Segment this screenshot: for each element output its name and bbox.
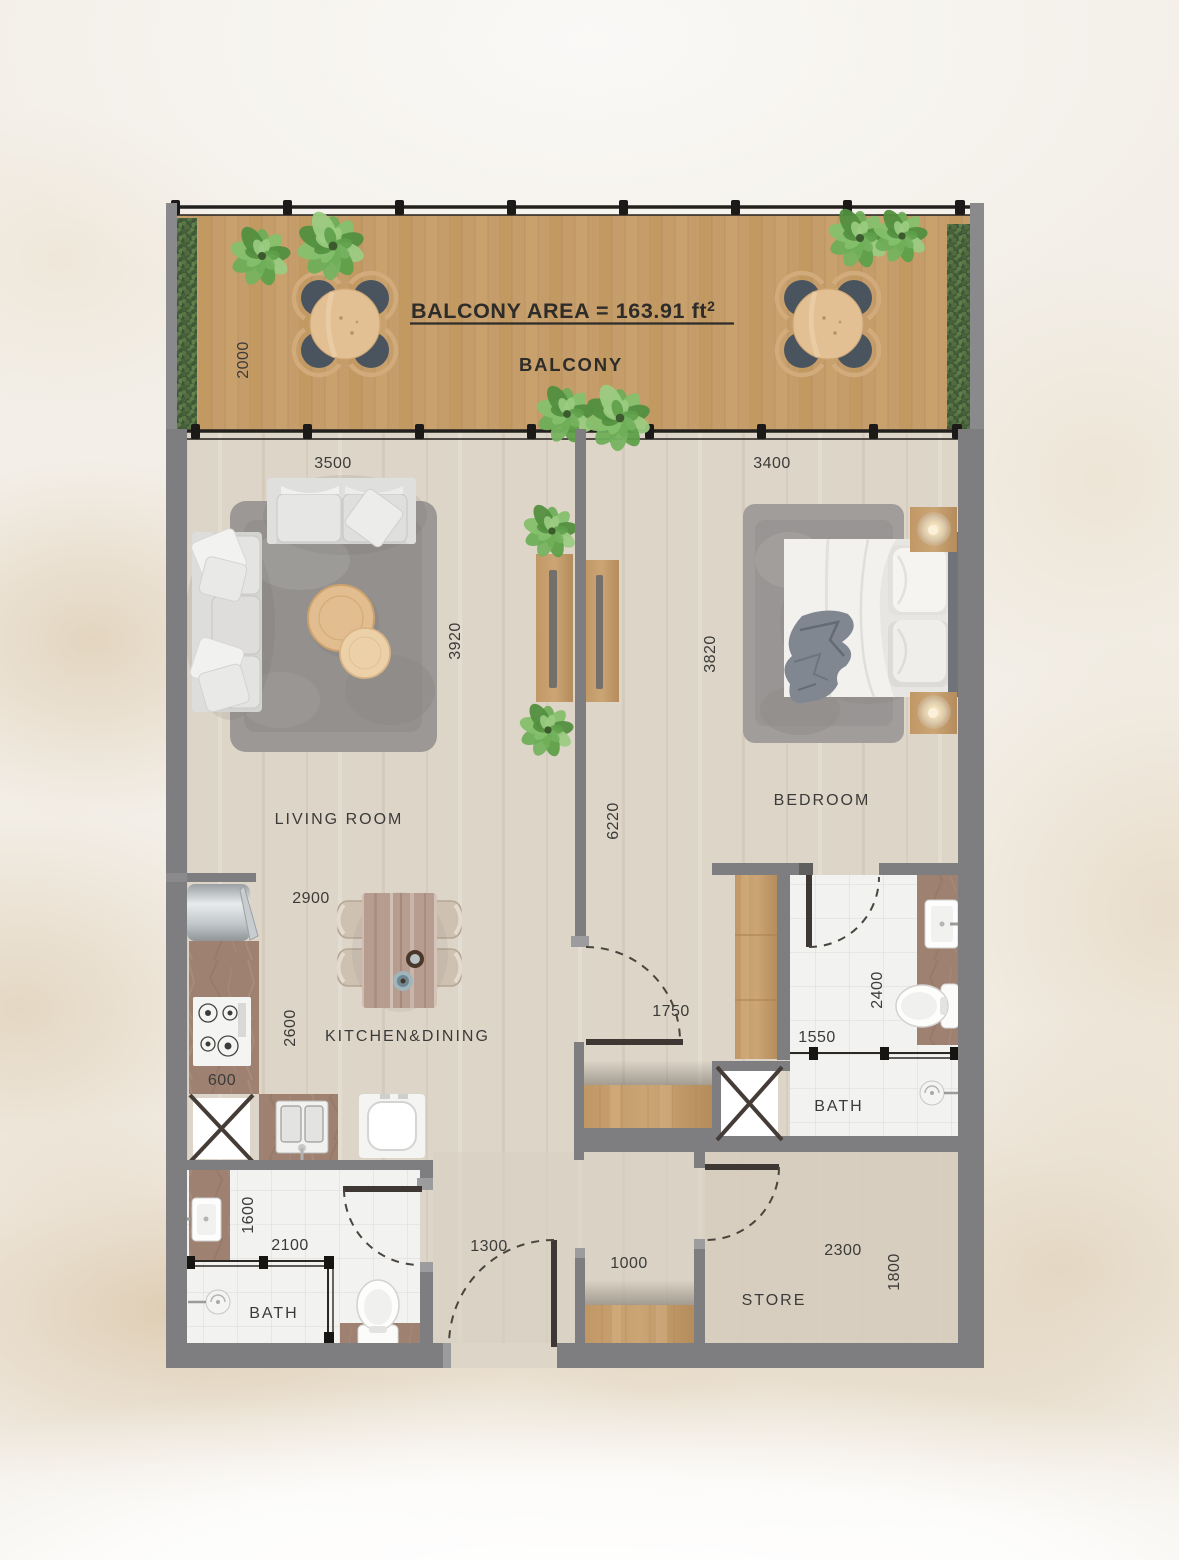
svg-text:1300: 1300	[470, 1238, 508, 1255]
svg-text:600: 600	[208, 1072, 236, 1089]
svg-text:BATH: BATH	[249, 1305, 298, 1322]
svg-text:LIVING ROOM: LIVING ROOM	[275, 811, 404, 828]
svg-text:3400: 3400	[753, 455, 791, 472]
svg-text:2400: 2400	[869, 971, 886, 1009]
svg-text:1750: 1750	[652, 1003, 690, 1020]
svg-text:2000: 2000	[235, 341, 252, 379]
svg-text:1800: 1800	[886, 1253, 903, 1291]
svg-text:1000: 1000	[610, 1255, 648, 1272]
svg-text:1550: 1550	[798, 1029, 836, 1046]
svg-text:STORE: STORE	[742, 1292, 807, 1309]
svg-text:3920: 3920	[447, 622, 464, 660]
svg-text:BALCONY: BALCONY	[519, 354, 623, 375]
svg-text:KITCHEN&DINING: KITCHEN&DINING	[325, 1028, 490, 1045]
svg-text:3500: 3500	[314, 455, 352, 472]
svg-text:2300: 2300	[824, 1242, 862, 1259]
svg-text:BATH: BATH	[814, 1098, 863, 1115]
svg-text:3820: 3820	[702, 635, 719, 673]
svg-text:1600: 1600	[240, 1196, 257, 1234]
svg-text:2600: 2600	[282, 1009, 299, 1047]
svg-text:6220: 6220	[605, 802, 622, 840]
svg-text:BEDROOM: BEDROOM	[774, 792, 871, 809]
svg-text:2100: 2100	[271, 1237, 309, 1254]
svg-text:BALCONY AREA = 163.91 ft2: BALCONY AREA = 163.91 ft2	[411, 298, 716, 323]
svg-text:2900: 2900	[292, 890, 330, 907]
